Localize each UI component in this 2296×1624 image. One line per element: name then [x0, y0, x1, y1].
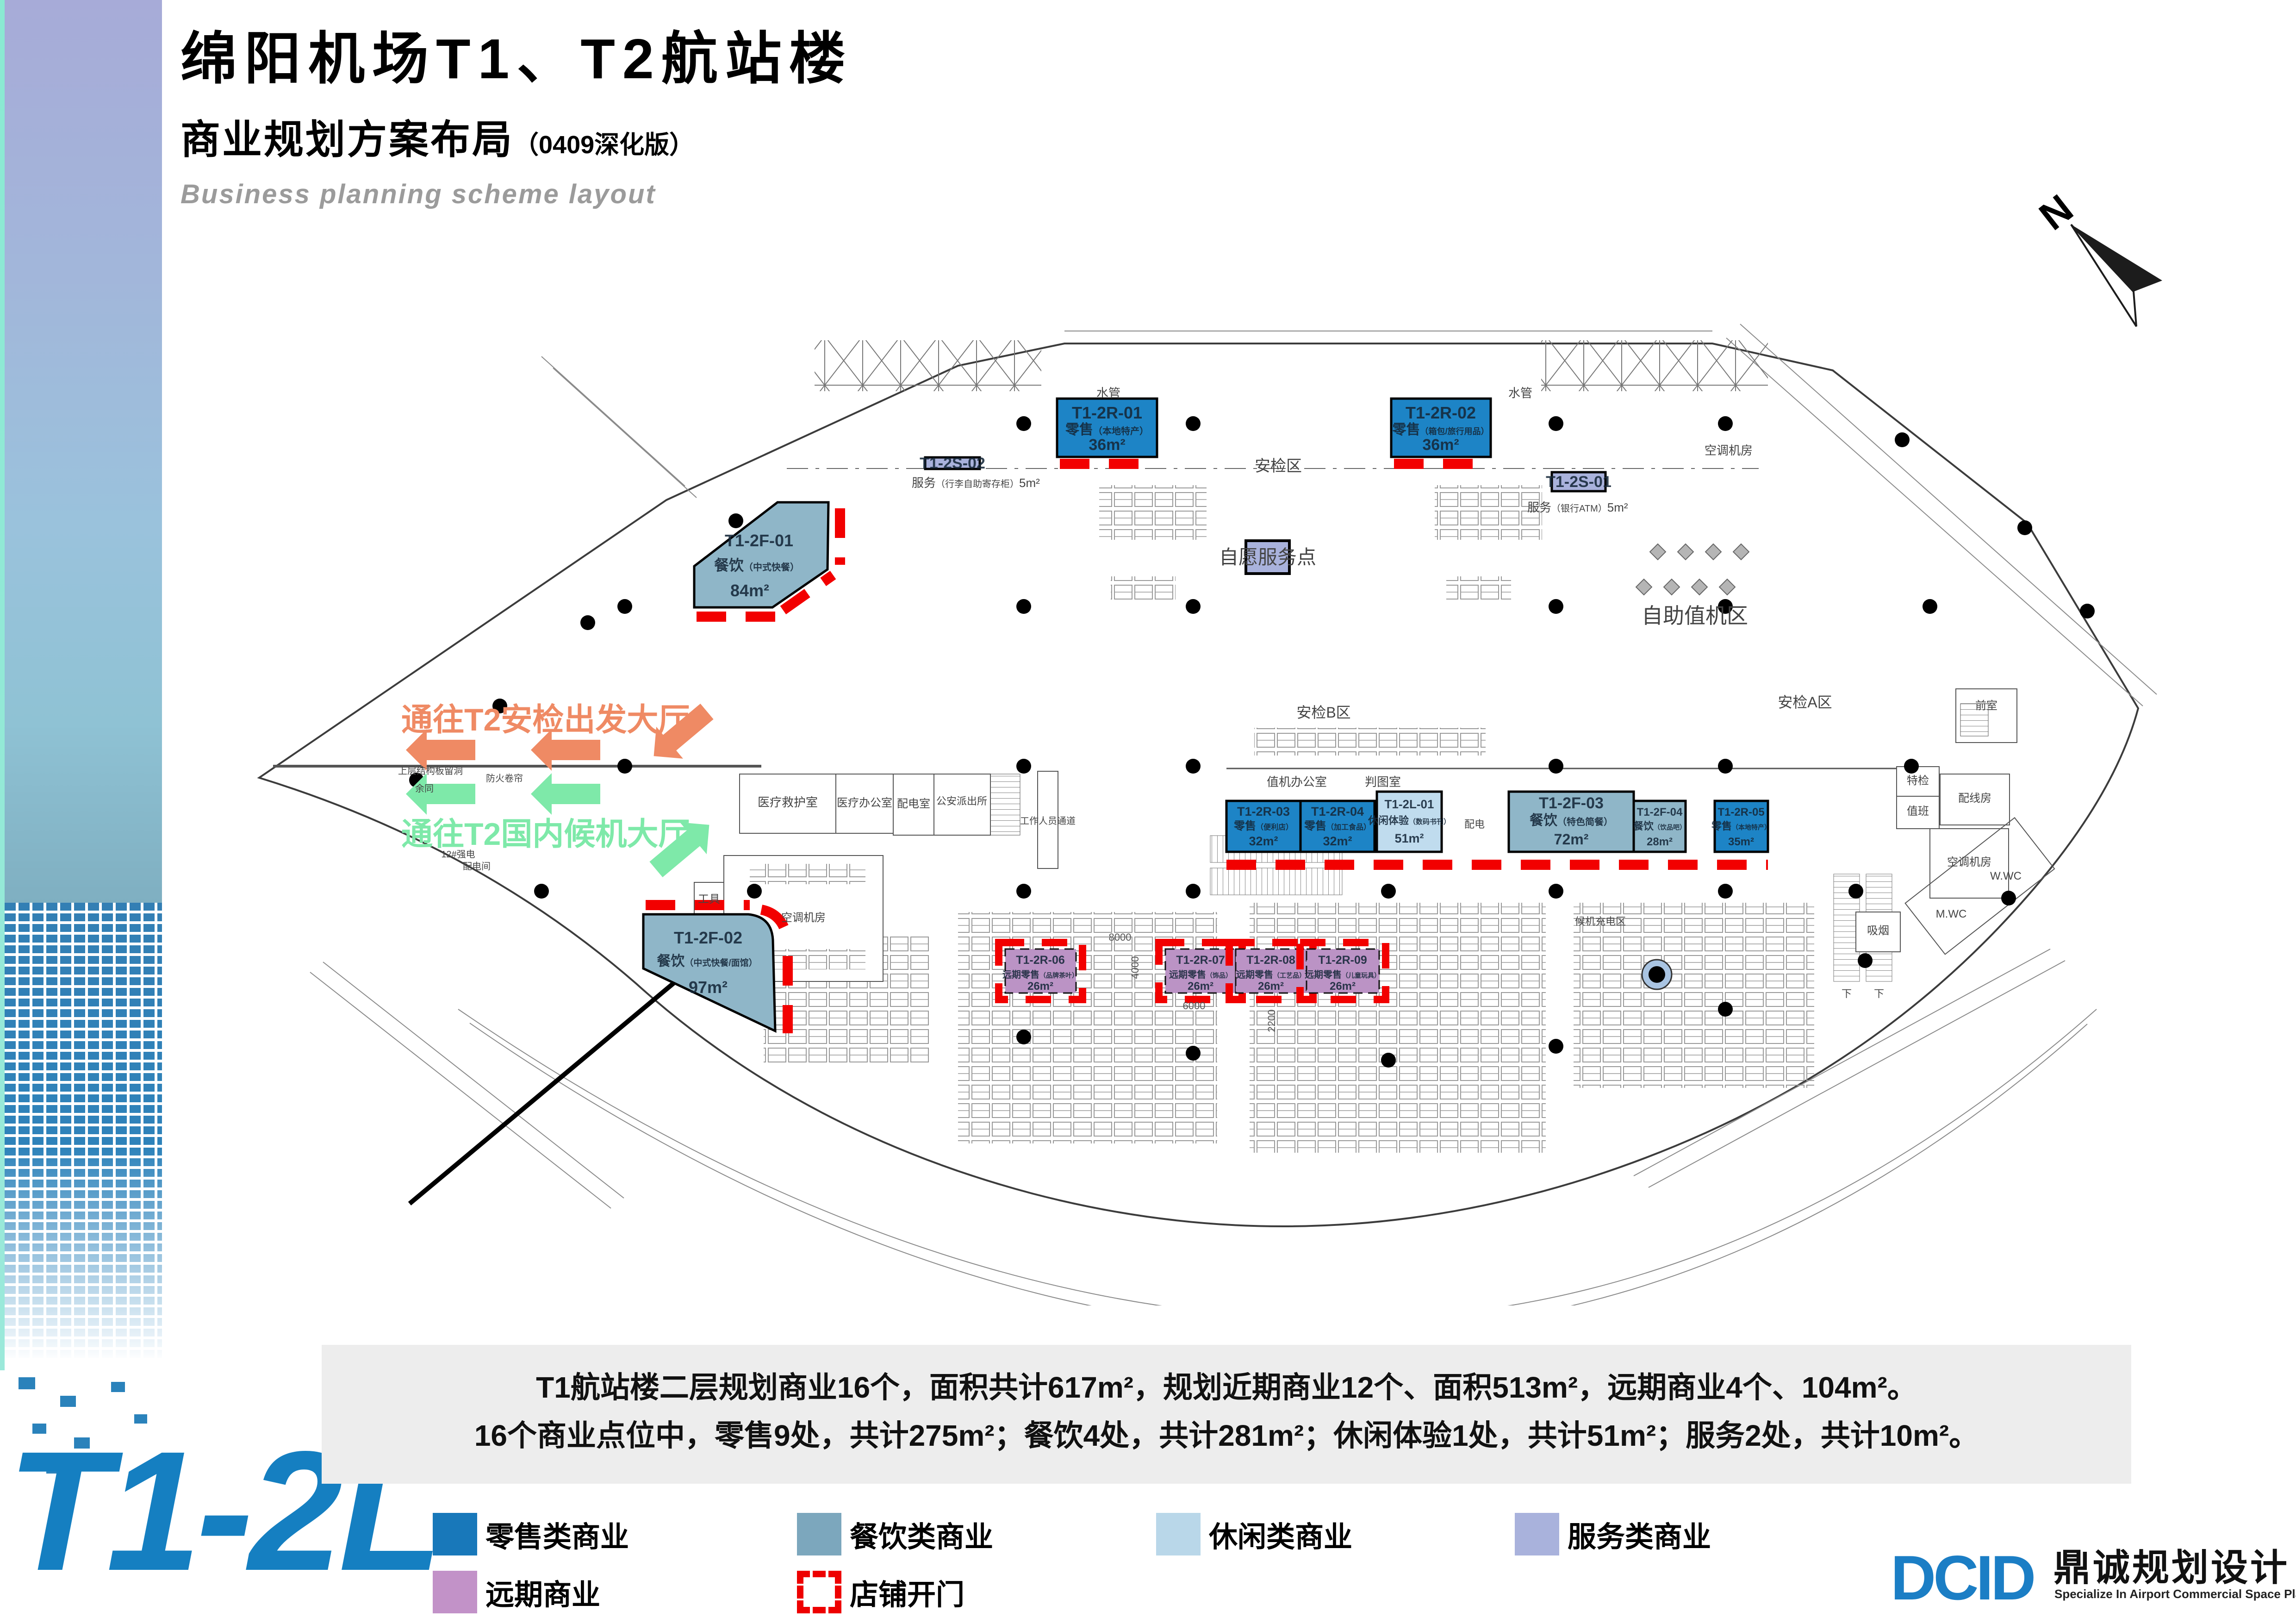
unit-T1-2R-05: T1-2R-05 零售（本地特产） 35m² [1711, 801, 1771, 852]
slide: { "header": { "title": "绵阳机场T1、T2航站楼", "… [0, 0, 2296, 1624]
logo-name: 鼎诚规划设计 [2053, 1538, 2290, 1592]
route-note-t2-departure: 通往T2安检出发大厅 [401, 702, 690, 737]
legend-item-food: 餐饮类商业 [797, 1513, 993, 1555]
unit-T1-2R-02: T1-2R-02 零售（箱包/旅行用品） 36m² [1391, 399, 1491, 464]
svg-text:26m²: 26m² [1027, 980, 1053, 993]
svg-text:N: N [2031, 186, 2081, 239]
svg-text:26m²: 26m² [1258, 980, 1284, 993]
logo-initials: DCID [1891, 1542, 2033, 1614]
svg-text:服务（银行ATM）5m²: 服务（银行ATM）5m² [1527, 500, 1628, 514]
svg-text:35m²: 35m² [1728, 836, 1754, 848]
svg-text:T1-2R-03: T1-2R-03 [1237, 805, 1290, 818]
svg-text:M.WC: M.WC [1936, 908, 1967, 920]
svg-text:2200: 2200 [1266, 1010, 1277, 1032]
english-subtitle: Business planning scheme layout [180, 179, 1384, 210]
svg-text:T1-2R-08: T1-2R-08 [1246, 954, 1295, 967]
route-note-t2-domestic: 通往T2国内候机大厅 [401, 817, 690, 852]
svg-text:防火卷帘: 防火卷帘 [486, 773, 523, 784]
svg-text:候机充电区: 候机充电区 [1575, 916, 1626, 927]
svg-text:工作人员通道: 工作人员通道 [1020, 816, 1076, 826]
svg-text:36m²: 36m² [1089, 436, 1125, 454]
svg-text:服务（行李自助寄存柜）5m²: 服务（行李自助寄存柜）5m² [912, 476, 1040, 490]
subtitle-version-note: （0409深化版） [514, 131, 694, 159]
svg-text:医疗救护室: 医疗救护室 [758, 795, 818, 809]
svg-text:T1-2F-02: T1-2F-02 [674, 928, 742, 947]
roof-truss-left [815, 340, 1041, 391]
unit-T1-2F-04: T1-2F-04 餐饮（饮品吧） 28m² [1633, 801, 1686, 852]
svg-text:T1-2R-09: T1-2R-09 [1318, 954, 1367, 967]
escalator [1210, 868, 1342, 895]
svg-text:空调机房: 空调机房 [1705, 443, 1753, 457]
svg-text:T1-2S-01: T1-2S-01 [1546, 473, 1612, 491]
svg-text:公安派出所: 公安派出所 [936, 795, 987, 807]
seating-block [1574, 903, 1814, 1088]
svg-text:前室: 前室 [1975, 700, 1997, 712]
sidebar-mosaic-pattern [5, 903, 162, 1375]
svg-text:自愿服务点: 自愿服务点 [1219, 546, 1316, 568]
svg-text:T1-2R-04: T1-2R-04 [1311, 805, 1364, 818]
svg-text:T1-2L-01: T1-2L-01 [1385, 797, 1434, 811]
sidebar-gradient [5, 0, 162, 903]
unit-T1-2R-06: T1-2R-06 远期零售（品牌茶叶） 26m² [999, 943, 1083, 999]
svg-text:配电室: 配电室 [897, 798, 930, 810]
svg-text:T1-2R-05: T1-2R-05 [1717, 806, 1764, 818]
svg-text:工具: 工具 [698, 893, 720, 906]
svg-text:安检B区: 安检B区 [1296, 704, 1350, 721]
future-swatch [433, 1571, 477, 1613]
legend: 零售类商业 餐饮类商业 休闲类商业 服务类商业 远期商业 店铺开门 [433, 1513, 1821, 1624]
svg-text:空调机房: 空调机房 [781, 912, 826, 924]
svg-text:值班: 值班 [1907, 805, 1929, 818]
svg-text:判图室: 判图室 [1365, 775, 1401, 789]
legend-item-door: 店铺开门 [797, 1571, 964, 1613]
svg-text:T1-2R-01: T1-2R-01 [1072, 403, 1142, 422]
legend-item-future: 远期商业 [433, 1571, 600, 1613]
unit-T1-2S-02: T1-2S-02 服务（行李自助寄存柜）5m² [912, 455, 1040, 490]
svg-text:上层结构板留洞: 上层结构板留洞 [398, 766, 463, 776]
unit-T1-2F-02: T1-2F-02 餐饮（中式快餐/面馆） 97m² [643, 905, 788, 1033]
svg-text:下: 下 [1842, 988, 1852, 999]
svg-text:T1-2F-04: T1-2F-04 [1637, 806, 1683, 818]
svg-text:余同: 余同 [415, 783, 434, 794]
svg-text:T1-2R-07: T1-2R-07 [1176, 954, 1225, 967]
svg-text:值机办公室: 值机办公室 [1267, 775, 1327, 789]
svg-text:26m²: 26m² [1330, 980, 1356, 993]
svg-text:T1-2F-03: T1-2F-03 [1539, 794, 1604, 812]
svg-text:12#强电: 12#强电 [441, 849, 475, 860]
summary-panel: T1航站楼二层规划商业16个，面积共计617m²，规划近期商业12个、面积513… [322, 1345, 2131, 1484]
svg-text:28m²: 28m² [1647, 836, 1673, 848]
svg-text:配电: 配电 [1464, 818, 1485, 830]
svg-text:51m²: 51m² [1394, 831, 1424, 845]
svg-text:97m²: 97m² [689, 978, 728, 997]
svg-text:水管: 水管 [1096, 386, 1120, 400]
legend-item-leisure: 休闲类商业 [1156, 1513, 1352, 1555]
logo-tagline: Specialize In Airport Commercial Space P… [2054, 1587, 2296, 1601]
security-lanes [1254, 728, 1486, 756]
food-swatch [797, 1513, 841, 1555]
svg-text:8000: 8000 [1109, 931, 1132, 943]
retail-swatch [433, 1513, 477, 1555]
svg-text:32m²: 32m² [1323, 834, 1352, 848]
unit-T1-2R-03: T1-2R-03 零售（便利店） 32m² [1226, 801, 1300, 852]
leader-line [410, 981, 676, 1204]
summary-line-2: 16个商业点位中，零售9处，共计275m²；餐饮4处，共计281m²；休闲体验1… [322, 1412, 2131, 1460]
summary-line-1: T1航站楼二层规划商业16个，面积共计617m²，规划近期商业12个、面积513… [322, 1363, 2131, 1412]
svg-text:吸烟: 吸烟 [1867, 924, 1889, 937]
svg-text:自助值机区: 自助值机区 [1642, 604, 1748, 628]
self-checkin-diamonds [1636, 544, 1749, 595]
page-title: 绵阳机场T1、T2航站楼 [180, 13, 1384, 95]
svg-text:特检: 特检 [1907, 775, 1929, 787]
stairs [990, 774, 1020, 835]
volunteer-service-point: 自愿服务点 [1219, 541, 1316, 574]
svg-text:T1-2R-02: T1-2R-02 [1406, 403, 1476, 422]
title-block: 绵阳机场T1、T2航站楼 商业规划方案布局（0409深化版） Business … [180, 13, 1384, 210]
svg-text:36m²: 36m² [1422, 436, 1459, 454]
legend-item-retail: 零售类商业 [433, 1513, 629, 1555]
svg-text:安检A区: 安检A区 [1778, 694, 1832, 711]
svg-text:配电间: 配电间 [463, 861, 491, 872]
unit-T1-2F-03: T1-2F-03 餐饮（特色简餐） 72m² [1509, 792, 1634, 852]
svg-text:72m²: 72m² [1554, 831, 1589, 848]
sidebar-edge-stripe [0, 0, 5, 1370]
roof-truss-right [1541, 340, 1768, 391]
svg-text:下: 下 [1874, 988, 1884, 999]
unit-T1-2R-01: T1-2R-01 零售（本地特产） 36m² [1057, 399, 1157, 464]
page-subtitle: 商业规划方案布局 [180, 118, 514, 162]
svg-text:配线房: 配线房 [1958, 792, 1991, 805]
svg-text:医疗办公室: 医疗办公室 [837, 797, 892, 809]
svg-text:26m²: 26m² [1188, 980, 1213, 993]
svg-text:T1-2R-06: T1-2R-06 [1016, 954, 1065, 967]
svg-text:6000: 6000 [1183, 1000, 1206, 1012]
leisure-swatch [1156, 1513, 1201, 1555]
svg-text:84m²: 84m² [730, 581, 769, 600]
unit-T1-2F-01: T1-2F-01 餐饮（中式快餐） 84m² [694, 502, 840, 617]
door-opening-swatch [797, 1571, 841, 1613]
svg-text:水管: 水管 [1508, 386, 1532, 400]
svg-text:T1-2F-01: T1-2F-01 [725, 531, 793, 550]
legend-item-service: 服务类商业 [1515, 1513, 1711, 1555]
svg-text:空调机房: 空调机房 [1947, 856, 1991, 868]
svg-text:W.WC: W.WC [1990, 870, 2022, 882]
unit-T1-2R-09: T1-2R-09 远期零售（儿童玩具） 26m² [1300, 943, 1386, 999]
floor-plan: T1-2R-01 零售（本地特产） 36m² T1-2R-02 零售（箱包/旅行… [218, 287, 2161, 1305]
svg-text:4000: 4000 [1129, 956, 1141, 979]
checkin-counters-left [1099, 485, 1207, 540]
checkin-counters-right [1435, 485, 1542, 540]
svg-text:T1-2S-02: T1-2S-02 [920, 455, 985, 472]
unit-T1-2L-01: T1-2L-01 休闲体验（数码书刊） 51m² [1368, 792, 1450, 852]
unit-T1-2S-01: T1-2S-01 服务（银行ATM）5m² [1527, 472, 1628, 514]
svg-text:安检区: 安检区 [1255, 457, 1302, 475]
service-swatch [1515, 1513, 1559, 1555]
svg-text:32m²: 32m² [1249, 834, 1278, 848]
unit-T1-2R-04: T1-2R-04 零售（加工食品） 32m² [1300, 801, 1375, 852]
